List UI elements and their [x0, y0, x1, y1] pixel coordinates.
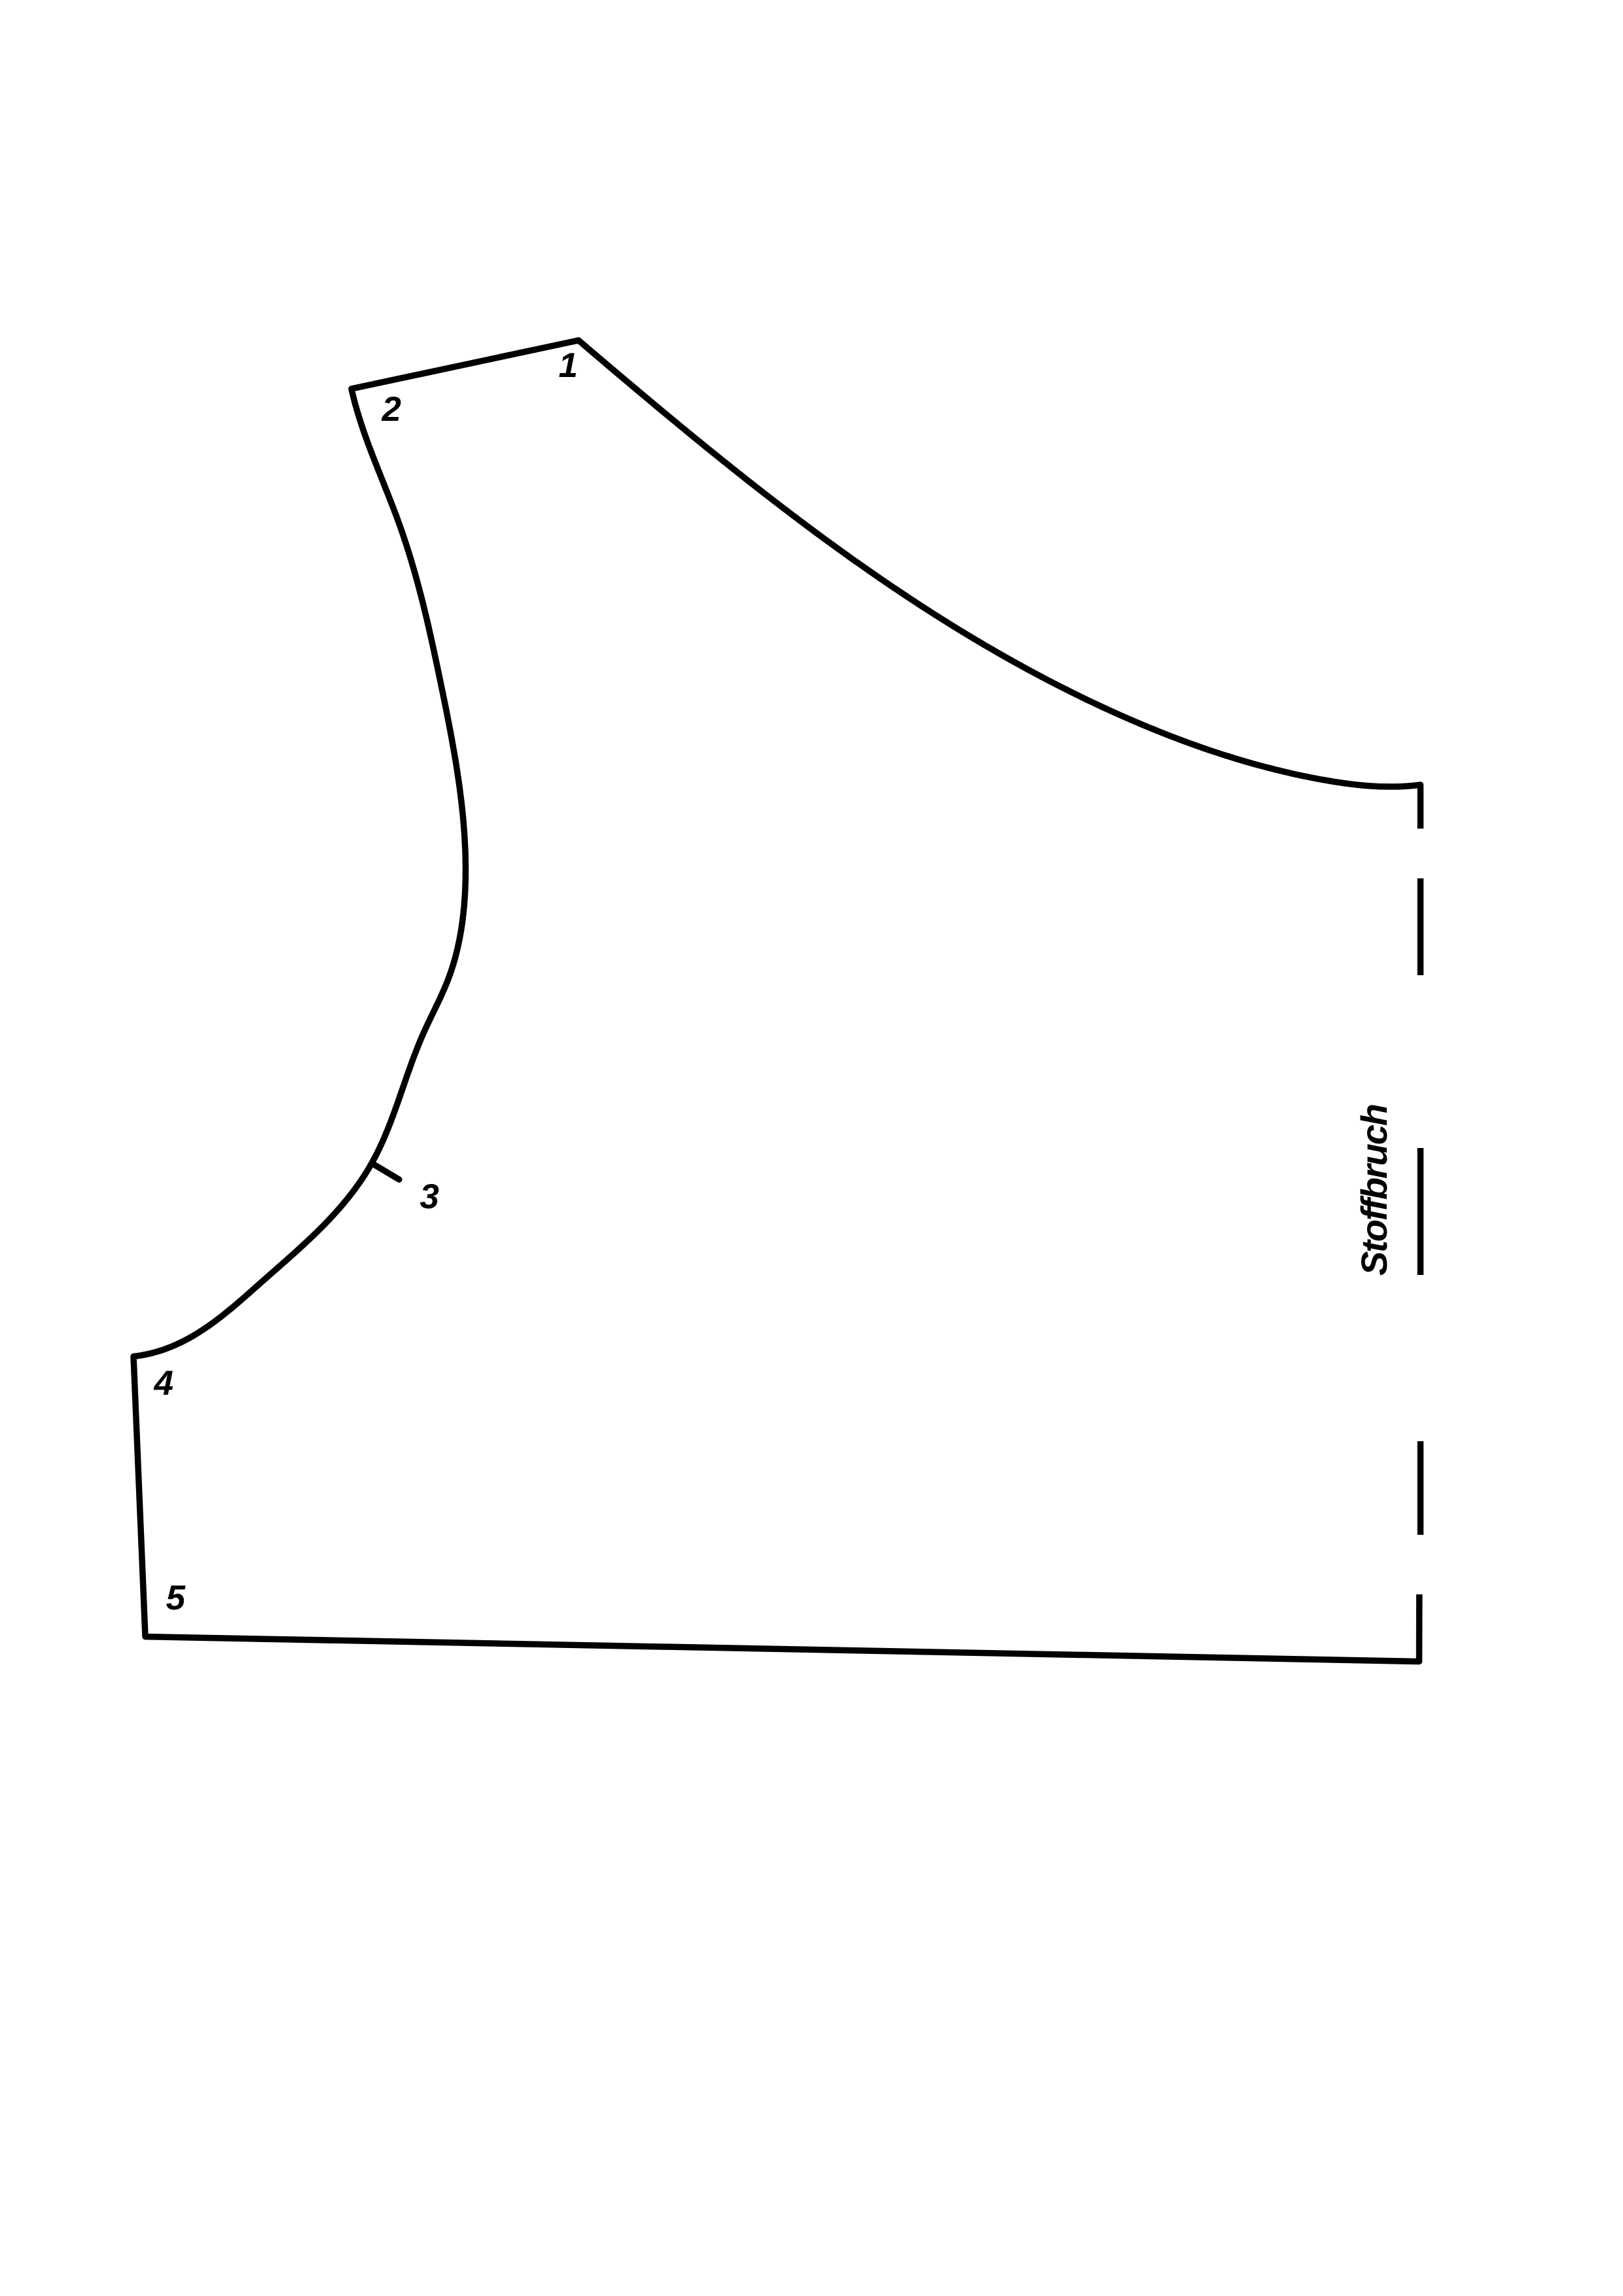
- svg-text:5: 5: [166, 1579, 187, 1617]
- svg-text:2: 2: [382, 390, 401, 429]
- svg-text:3: 3: [420, 1177, 439, 1216]
- svg-text:1: 1: [559, 346, 578, 385]
- svg-text:4: 4: [154, 1364, 173, 1403]
- svg-text:Stoffbruch: Stoffbruch: [1353, 1103, 1395, 1276]
